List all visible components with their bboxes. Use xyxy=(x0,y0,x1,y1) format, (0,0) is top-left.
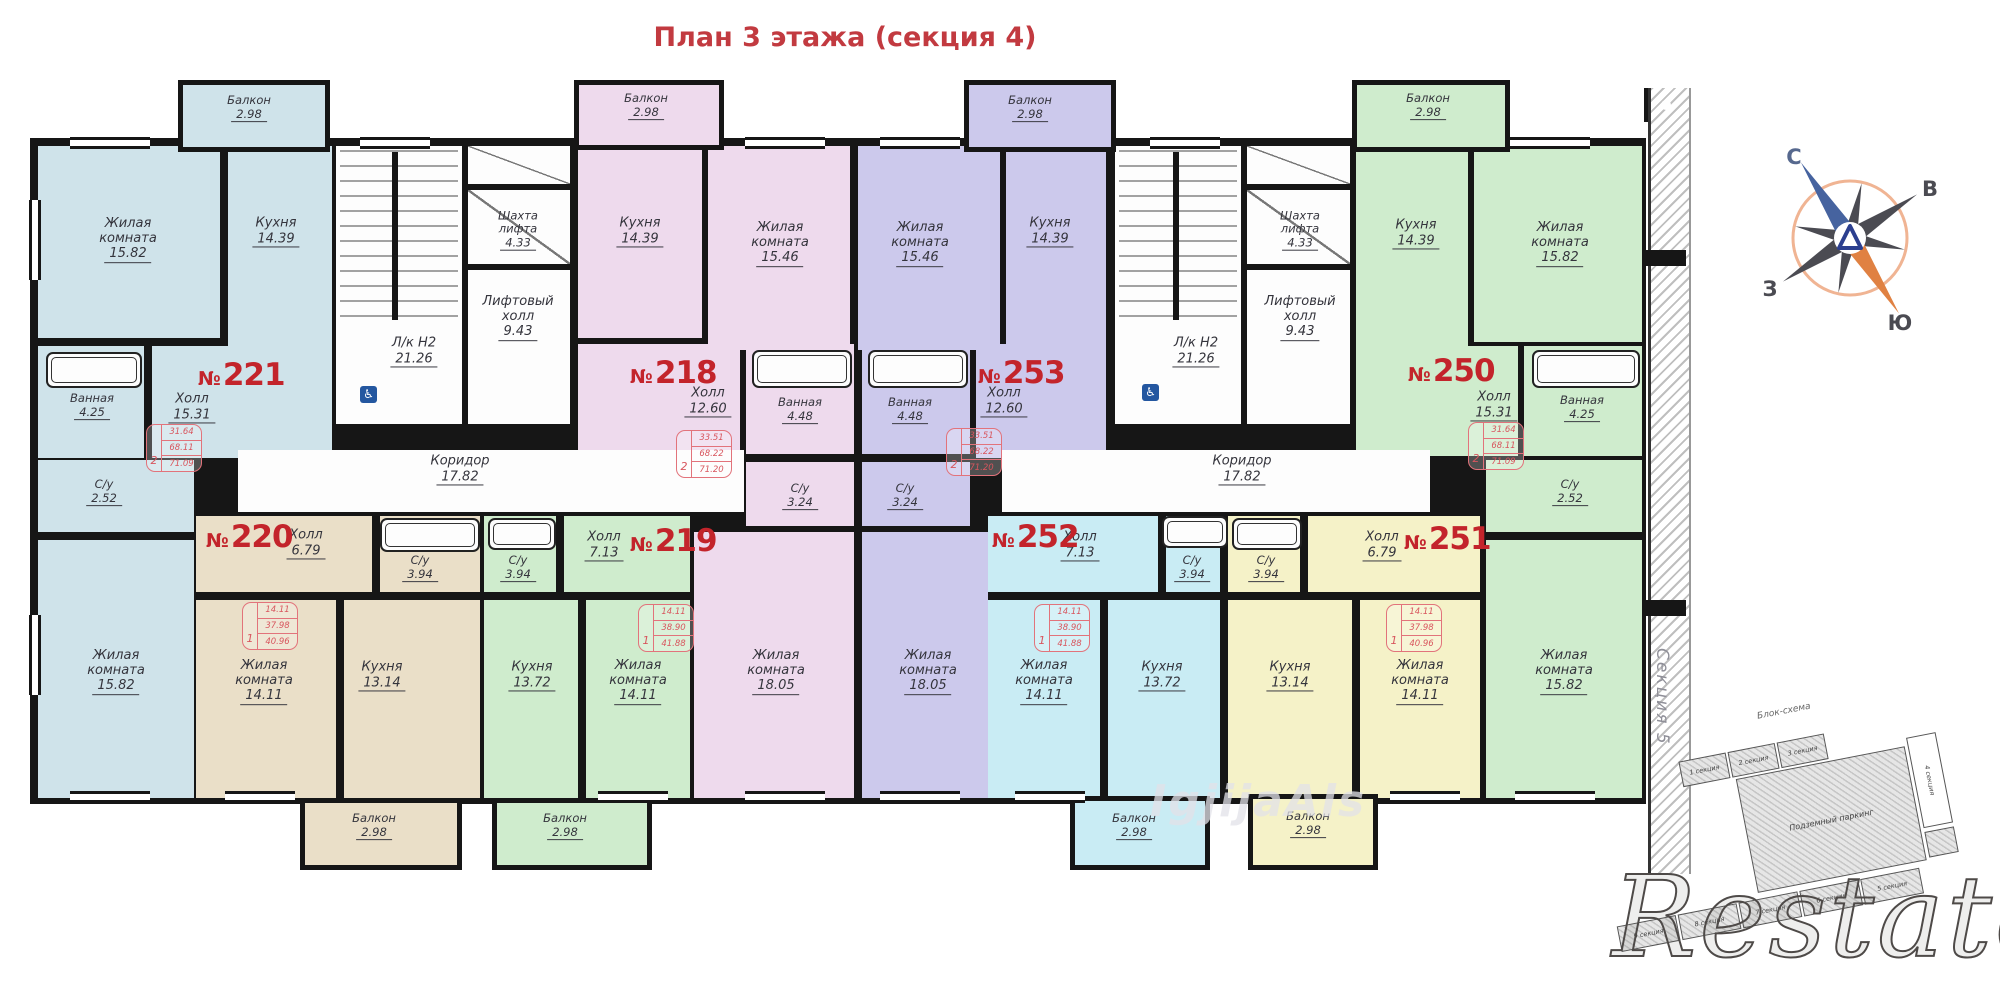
spec-box-252: 114.1138.9041.88 xyxy=(1034,604,1090,652)
label-kitchen-253: Кухня14.39 xyxy=(1026,216,1073,247)
stair-treads-icon xyxy=(340,150,458,320)
label-living-221-bottom: Жилая комната15.82 xyxy=(87,649,145,695)
shaft-diagonal xyxy=(1247,146,1350,184)
label-kitchen-250: Кухня14.39 xyxy=(1392,218,1439,249)
window xyxy=(70,791,150,803)
wall xyxy=(1352,600,1360,798)
room-name: Балкон xyxy=(624,92,668,105)
bathtub-icon xyxy=(380,518,480,552)
spec-values: 31.6468.1171.09 xyxy=(1484,423,1523,469)
schema-section-label: 4 секция xyxy=(1923,764,1937,795)
window xyxy=(745,791,825,803)
spec-v1: 33.51 xyxy=(692,431,731,447)
label-hall-221: Холл15.31 xyxy=(168,392,215,423)
room-name: Лифтовый холл xyxy=(1264,295,1335,324)
window xyxy=(598,791,668,803)
label-hall-251: Холл6.79 xyxy=(1363,530,1402,561)
label-bath-221: Ванная4.25 xyxy=(70,392,114,420)
label-bath-218: Ванная4.48 xyxy=(778,396,822,424)
bathtub-icon xyxy=(46,352,142,388)
room-area: 2.98 xyxy=(1410,106,1446,120)
room-name: Балкон xyxy=(543,812,587,825)
room-lift-hall-right xyxy=(1247,270,1350,424)
schema-section-label: 1 секция xyxy=(1689,763,1720,777)
spec-v2: 38.90 xyxy=(1050,621,1089,637)
stair-divider xyxy=(392,152,398,320)
number-sign: № xyxy=(630,534,653,556)
window xyxy=(1510,137,1590,149)
room-area: 2.98 xyxy=(231,108,267,122)
label-balcony-220: Балкон2.98 xyxy=(352,812,396,840)
apartment-number-220: №220 xyxy=(206,522,293,553)
label-hall-250: Холл15.31 xyxy=(1470,390,1517,421)
label-living-253-top: Жилая комната15.46 xyxy=(891,221,949,267)
label-lift-shaft-right: Шахта лифта4.33 xyxy=(1280,210,1320,251)
room-name: Кухня xyxy=(1396,218,1437,233)
label-corridor-right: Коридор17.82 xyxy=(1212,454,1271,485)
spec-rooms: 1 xyxy=(1387,605,1402,651)
label-kitchen-219: Кухня13.72 xyxy=(508,660,555,691)
room-lift-hall-left xyxy=(468,270,570,424)
label-wc-251: С/у3.94 xyxy=(1248,554,1284,582)
room-corridor-left xyxy=(238,450,744,512)
apartment-number-221: №221 xyxy=(198,360,285,391)
room-area: 14.39 xyxy=(1026,232,1073,248)
room-name: Ванная xyxy=(1560,394,1604,407)
room-area: 15.46 xyxy=(896,251,943,267)
room-area: 4.33 xyxy=(1282,236,1318,250)
room-area: 7.13 xyxy=(585,546,624,562)
room-area: 18.05 xyxy=(752,679,799,695)
bathtub-icon xyxy=(868,350,968,388)
compass-north-label: С xyxy=(1786,145,1801,169)
faint-watermark: IgjijaAls xyxy=(1150,776,1366,827)
wall xyxy=(988,592,1220,600)
spec-rooms: 2 xyxy=(147,425,162,471)
window xyxy=(745,137,825,149)
label-living-219: Жилая комната14.11 xyxy=(609,659,667,705)
apartment-number-250: №250 xyxy=(1408,356,1495,387)
label-balcony-219: Балкон2.98 xyxy=(543,812,587,840)
spec-v2: 37.98 xyxy=(1402,621,1441,637)
room-area: 14.11 xyxy=(240,689,287,705)
block-schema-title: Блок-схема xyxy=(1756,702,1811,722)
room-area: 15.82 xyxy=(92,679,139,695)
room-name: Жилая комната xyxy=(1015,659,1073,688)
room-name: С/у xyxy=(95,478,114,491)
number-value: 219 xyxy=(655,526,717,557)
label-lift-hall-left: Лифтовый холл9.43 xyxy=(482,295,553,341)
room-area: 3.94 xyxy=(500,568,536,582)
label-wc-219: С/у3.94 xyxy=(500,554,536,582)
room-name: Лифтовый холл xyxy=(482,295,553,324)
room-name: Холл xyxy=(289,528,322,543)
label-kitchen-251: Кухня13.14 xyxy=(1266,660,1313,691)
label-living-221-top: Жилая комната15.82 xyxy=(99,217,157,263)
label-kitchen-252: Кухня13.72 xyxy=(1138,660,1185,691)
room-area: 2.98 xyxy=(547,826,583,840)
wall xyxy=(38,532,194,540)
room-name: Кухня xyxy=(1270,660,1311,675)
room-area: 15.46 xyxy=(756,251,803,267)
apartment-number-251: №251 xyxy=(1404,524,1491,555)
wall xyxy=(196,592,480,600)
room-area: 3.94 xyxy=(1248,568,1284,582)
wall xyxy=(336,600,344,798)
schema-section-1: 1 секция xyxy=(1678,753,1730,788)
room-area: 14.39 xyxy=(252,232,299,248)
spec-v3: 71.20 xyxy=(692,462,731,477)
label-living-251: Жилая комната14.11 xyxy=(1391,659,1449,705)
number-sign: № xyxy=(206,530,229,552)
room-area: 13.72 xyxy=(508,676,555,692)
room-name: С/у xyxy=(411,554,430,567)
wheelchair-icon: ♿ xyxy=(1142,384,1159,401)
spec-v1: 33.51 xyxy=(962,429,1001,445)
room-name: С/у xyxy=(896,482,915,495)
compass-west-label: З xyxy=(1763,277,1778,301)
label-corridor-left: Коридор17.82 xyxy=(430,454,489,485)
spec-values: 33.5168.2271.20 xyxy=(692,431,731,477)
room-name: Жилая комната xyxy=(1391,659,1449,688)
number-value: 218 xyxy=(655,358,717,389)
room-area: 12.60 xyxy=(684,402,731,418)
room-kitchen-253 xyxy=(1006,146,1106,350)
room-name: Ванная xyxy=(778,396,822,409)
room-area: 13.14 xyxy=(1266,676,1313,692)
room-name: Балкон xyxy=(352,812,396,825)
spec-v3: 41.88 xyxy=(1050,636,1089,651)
room-name: Ванная xyxy=(888,396,932,409)
window xyxy=(225,791,295,803)
spec-v1: 14.11 xyxy=(1402,605,1441,621)
room-area: 17.82 xyxy=(436,470,483,486)
number-sign: № xyxy=(1408,364,1431,386)
label-hall-253: Холл12.60 xyxy=(980,386,1027,417)
room-name: Л/к Н2 xyxy=(392,336,436,351)
room-name: С/у xyxy=(1183,554,1202,567)
window xyxy=(880,137,960,149)
room-name: Жилая комната xyxy=(891,221,949,250)
label-living-220: Жилая комната14.11 xyxy=(235,659,293,705)
schema-section-label: 3 секция xyxy=(1787,744,1818,758)
room-area: 2.52 xyxy=(86,492,122,506)
label-wc-218: С/у3.24 xyxy=(782,482,818,510)
room-name: Кухня xyxy=(620,216,661,231)
room-name: Жилая комната xyxy=(87,649,145,678)
room-area: 6.79 xyxy=(1363,546,1402,562)
wall-anchor xyxy=(1642,250,1686,266)
room-area: 3.94 xyxy=(1174,568,1210,582)
number-value: 250 xyxy=(1433,356,1495,387)
apartment-number-219: №219 xyxy=(630,526,717,557)
room-name: С/у xyxy=(1561,478,1580,491)
room-area: 14.11 xyxy=(1396,689,1443,705)
room-name: Балкон xyxy=(1406,92,1450,105)
spec-rooms: 1 xyxy=(639,605,654,651)
window xyxy=(1150,137,1220,149)
room-area: 14.39 xyxy=(1392,234,1439,250)
label-wc-250: С/у2.52 xyxy=(1552,478,1588,506)
room-area: 3.94 xyxy=(402,568,438,582)
number-sign: № xyxy=(992,530,1015,552)
spec-rooms: 2 xyxy=(1469,423,1484,469)
room-area: 14.11 xyxy=(1020,689,1067,705)
number-sign: № xyxy=(630,366,653,388)
room-area: 15.82 xyxy=(104,247,151,263)
room-name: Жилая комната xyxy=(751,221,809,250)
room-area: 15.31 xyxy=(1470,406,1517,422)
room-name: С/у xyxy=(791,482,810,495)
section-5-label: Секция 5 xyxy=(1652,648,1672,778)
label-bath-250: Ванная4.25 xyxy=(1560,394,1604,422)
room-name: Л/к Н2 xyxy=(1174,336,1218,351)
window xyxy=(1515,791,1595,803)
room-area: 15.31 xyxy=(168,408,215,424)
wall xyxy=(1100,600,1108,798)
room-area: 4.48 xyxy=(782,410,818,424)
spec-values: 31.6468.1171.09 xyxy=(162,425,201,471)
room-name: Жилая комната xyxy=(747,649,805,678)
room-name: Кухня xyxy=(256,216,297,231)
spec-v2: 68.22 xyxy=(692,447,731,463)
stair-divider xyxy=(1173,152,1179,320)
room-name: Шахта лифта xyxy=(1280,210,1320,236)
label-living-250-bottom: Жилая комната15.82 xyxy=(1535,649,1593,695)
spec-v1: 14.11 xyxy=(258,603,297,619)
apartment-number-218: №218 xyxy=(630,358,717,389)
wall-anchor xyxy=(1642,600,1686,616)
label-living-218-bottom: Жилая комната18.05 xyxy=(747,649,805,695)
number-sign: № xyxy=(978,366,1001,388)
room-area: 4.25 xyxy=(74,406,110,420)
room-area: 21.26 xyxy=(390,352,437,368)
label-living-253-bottom: Жилая комната18.05 xyxy=(899,649,957,695)
room-name: Коридор xyxy=(430,454,489,469)
room-area: 9.43 xyxy=(1281,325,1320,341)
hatch-cap-dot xyxy=(1661,100,1671,110)
spec-v3: 40.96 xyxy=(1402,636,1441,651)
room-area: 14.39 xyxy=(616,232,663,248)
shaft-diagonal xyxy=(468,146,570,184)
number-value: 253 xyxy=(1003,358,1065,389)
window xyxy=(70,137,150,149)
window xyxy=(880,791,960,803)
window xyxy=(1390,791,1460,803)
room-area: 18.05 xyxy=(904,679,951,695)
label-balcony-218: Балкон2.98 xyxy=(624,92,668,120)
room-area: 2.98 xyxy=(628,106,664,120)
room-name: Коридор xyxy=(1212,454,1271,469)
room-area: 15.82 xyxy=(1536,251,1583,267)
window xyxy=(1015,791,1085,803)
label-wc-221: С/у2.52 xyxy=(86,478,122,506)
room-area: 2.98 xyxy=(1116,826,1152,840)
bathtub-icon xyxy=(752,350,852,388)
wall xyxy=(1228,592,1480,600)
spec-v3: 71.09 xyxy=(162,456,201,471)
label-lift-shaft-left: Шахта лифта4.33 xyxy=(498,210,538,251)
apartment-number-252: №252 xyxy=(992,522,1079,553)
room-name: Кухня xyxy=(1030,216,1071,231)
spec-v2: 38.90 xyxy=(654,621,693,637)
room-area: 15.82 xyxy=(1540,679,1587,695)
room-area: 3.24 xyxy=(887,496,923,510)
spec-v3: 41.88 xyxy=(654,636,693,651)
spec-v3: 71.20 xyxy=(962,460,1001,475)
label-balcony-253: Балкон2.98 xyxy=(1008,94,1052,122)
number-sign: № xyxy=(1404,532,1427,554)
label-staircase-left: Л/к Н221.26 xyxy=(390,336,437,367)
spec-values: 14.1137.9840.96 xyxy=(258,603,297,649)
schema-parking-label: Подземный паркинг xyxy=(1788,807,1874,832)
spec-box-219: 114.1138.9041.88 xyxy=(638,604,694,652)
compass-east-label: В xyxy=(1922,177,1938,201)
room-name: Жилая комната xyxy=(1535,649,1593,678)
room-name: Шахта лифта xyxy=(498,210,538,236)
room-name: Жилая комната xyxy=(1531,221,1589,250)
wall xyxy=(1486,532,1642,540)
room-name: С/у xyxy=(509,554,528,567)
spec-v2: 37.98 xyxy=(258,619,297,635)
label-kitchen-218: Кухня14.39 xyxy=(616,216,663,247)
room-name: Жилая комната xyxy=(899,649,957,678)
number-sign: № xyxy=(198,368,221,390)
room-area: 4.25 xyxy=(1564,408,1600,422)
room-area: 4.48 xyxy=(892,410,928,424)
spec-v2: 68.11 xyxy=(162,441,201,457)
room-name: Холл xyxy=(1365,530,1398,545)
bathtub-icon xyxy=(1232,518,1302,550)
label-hall-219: Холл7.13 xyxy=(585,530,624,561)
spec-box-253: 233.5168.2271.20 xyxy=(946,428,1002,476)
spec-rooms: 1 xyxy=(243,603,258,649)
spec-box-251: 114.1137.9840.96 xyxy=(1386,604,1442,652)
number-value: 220 xyxy=(231,522,293,553)
window xyxy=(360,137,430,149)
room-name: Кухня xyxy=(512,660,553,675)
spec-values: 33.5168.2271.20 xyxy=(962,429,1001,475)
wall xyxy=(556,516,564,596)
wall xyxy=(578,600,586,798)
spec-rooms: 2 xyxy=(947,429,962,475)
room-area: 14.11 xyxy=(614,689,661,705)
room-name: Жилая комната xyxy=(99,217,157,246)
bathtub-icon xyxy=(1162,516,1228,548)
spec-v1: 14.11 xyxy=(1050,605,1089,621)
window xyxy=(29,200,41,280)
label-wc-220: С/у3.94 xyxy=(402,554,438,582)
label-living-250-top: Жилая комната15.82 xyxy=(1531,221,1589,267)
spec-box-220: 114.1137.9840.96 xyxy=(242,602,298,650)
window xyxy=(29,615,41,695)
label-wc-252: С/у3.94 xyxy=(1174,554,1210,582)
spec-v3: 71.09 xyxy=(1484,454,1523,469)
spec-v3: 40.96 xyxy=(258,634,297,649)
spec-values: 14.1138.9041.88 xyxy=(1050,605,1089,651)
label-balcony-221: Балкон2.98 xyxy=(227,94,271,122)
spec-v1: 31.64 xyxy=(162,425,201,441)
room-area: 17.82 xyxy=(1218,470,1265,486)
room-name: Жилая комната xyxy=(235,659,293,688)
schema-section-label: 2 секция xyxy=(1738,754,1769,768)
spec-box-221: 231.6468.1171.09 xyxy=(146,424,202,472)
spec-rooms: 2 xyxy=(677,431,692,477)
room-name: Балкон xyxy=(227,94,271,107)
room-name: Холл xyxy=(587,530,620,545)
label-living-218-top: Жилая комната15.46 xyxy=(751,221,809,267)
room-area: 2.98 xyxy=(1012,108,1048,122)
room-area: 12.60 xyxy=(980,402,1027,418)
apartment-number-253: №253 xyxy=(978,358,1065,389)
room-name: Ванная xyxy=(70,392,114,405)
label-kitchen-221: Кухня14.39 xyxy=(252,216,299,247)
spec-v1: 31.64 xyxy=(1484,423,1523,439)
spec-values: 14.1138.9041.88 xyxy=(654,605,693,651)
compass-south-label: Ю xyxy=(1888,311,1913,335)
wall xyxy=(372,516,380,596)
room-column-221 xyxy=(38,460,194,798)
label-wc-253: С/у3.24 xyxy=(887,482,923,510)
room-name: Холл xyxy=(175,392,208,407)
room-column-250 xyxy=(1486,460,1642,798)
number-value: 252 xyxy=(1017,522,1079,553)
room-name: Балкон xyxy=(1008,94,1052,107)
wheelchair-icon: ♿ xyxy=(360,386,377,403)
room-area: 3.24 xyxy=(782,496,818,510)
room-name: Жилая комната xyxy=(609,659,667,688)
room-name: Холл xyxy=(1477,390,1510,405)
page-title: План 3 этажа (секция 4) xyxy=(654,22,1037,53)
number-value: 251 xyxy=(1429,524,1491,555)
spec-rooms: 1 xyxy=(1035,605,1050,651)
room-area: 4.33 xyxy=(500,236,536,250)
spec-v1: 14.11 xyxy=(654,605,693,621)
spec-box-250: 231.6468.1171.09 xyxy=(1468,422,1524,470)
compass-rose: С В З Ю xyxy=(1748,116,1952,346)
spec-v2: 68.22 xyxy=(962,445,1001,461)
label-lift-hall-right: Лифтовый холл9.43 xyxy=(1264,295,1335,341)
label-living-252: Жилая комната14.11 xyxy=(1015,659,1073,705)
label-bath-253: Ванная4.48 xyxy=(888,396,932,424)
spec-v2: 68.11 xyxy=(1484,439,1523,455)
room-area: 21.26 xyxy=(1172,352,1219,368)
room-name: Кухня xyxy=(362,660,403,675)
room-name: Кухня xyxy=(1142,660,1183,675)
room-name: С/у xyxy=(1257,554,1276,567)
bathtub-icon xyxy=(488,518,556,550)
spec-box-218: 233.5168.2271.20 xyxy=(676,430,732,478)
brand-watermark: Restate xyxy=(1612,862,2000,974)
number-value: 221 xyxy=(223,360,285,391)
room-area: 9.43 xyxy=(499,325,538,341)
room-area: 13.72 xyxy=(1138,676,1185,692)
room-area: 13.14 xyxy=(358,676,405,692)
label-hall-218: Холл12.60 xyxy=(684,386,731,417)
room-area: 2.98 xyxy=(356,826,392,840)
label-balcony-250: Балкон2.98 xyxy=(1406,92,1450,120)
label-staircase-right: Л/к Н221.26 xyxy=(1172,336,1219,367)
label-kitchen-220: Кухня13.14 xyxy=(358,660,405,691)
room-area: 2.52 xyxy=(1552,492,1588,506)
bathtub-icon xyxy=(1532,350,1640,388)
wall xyxy=(484,592,690,600)
spec-values: 14.1137.9840.96 xyxy=(1402,605,1441,651)
